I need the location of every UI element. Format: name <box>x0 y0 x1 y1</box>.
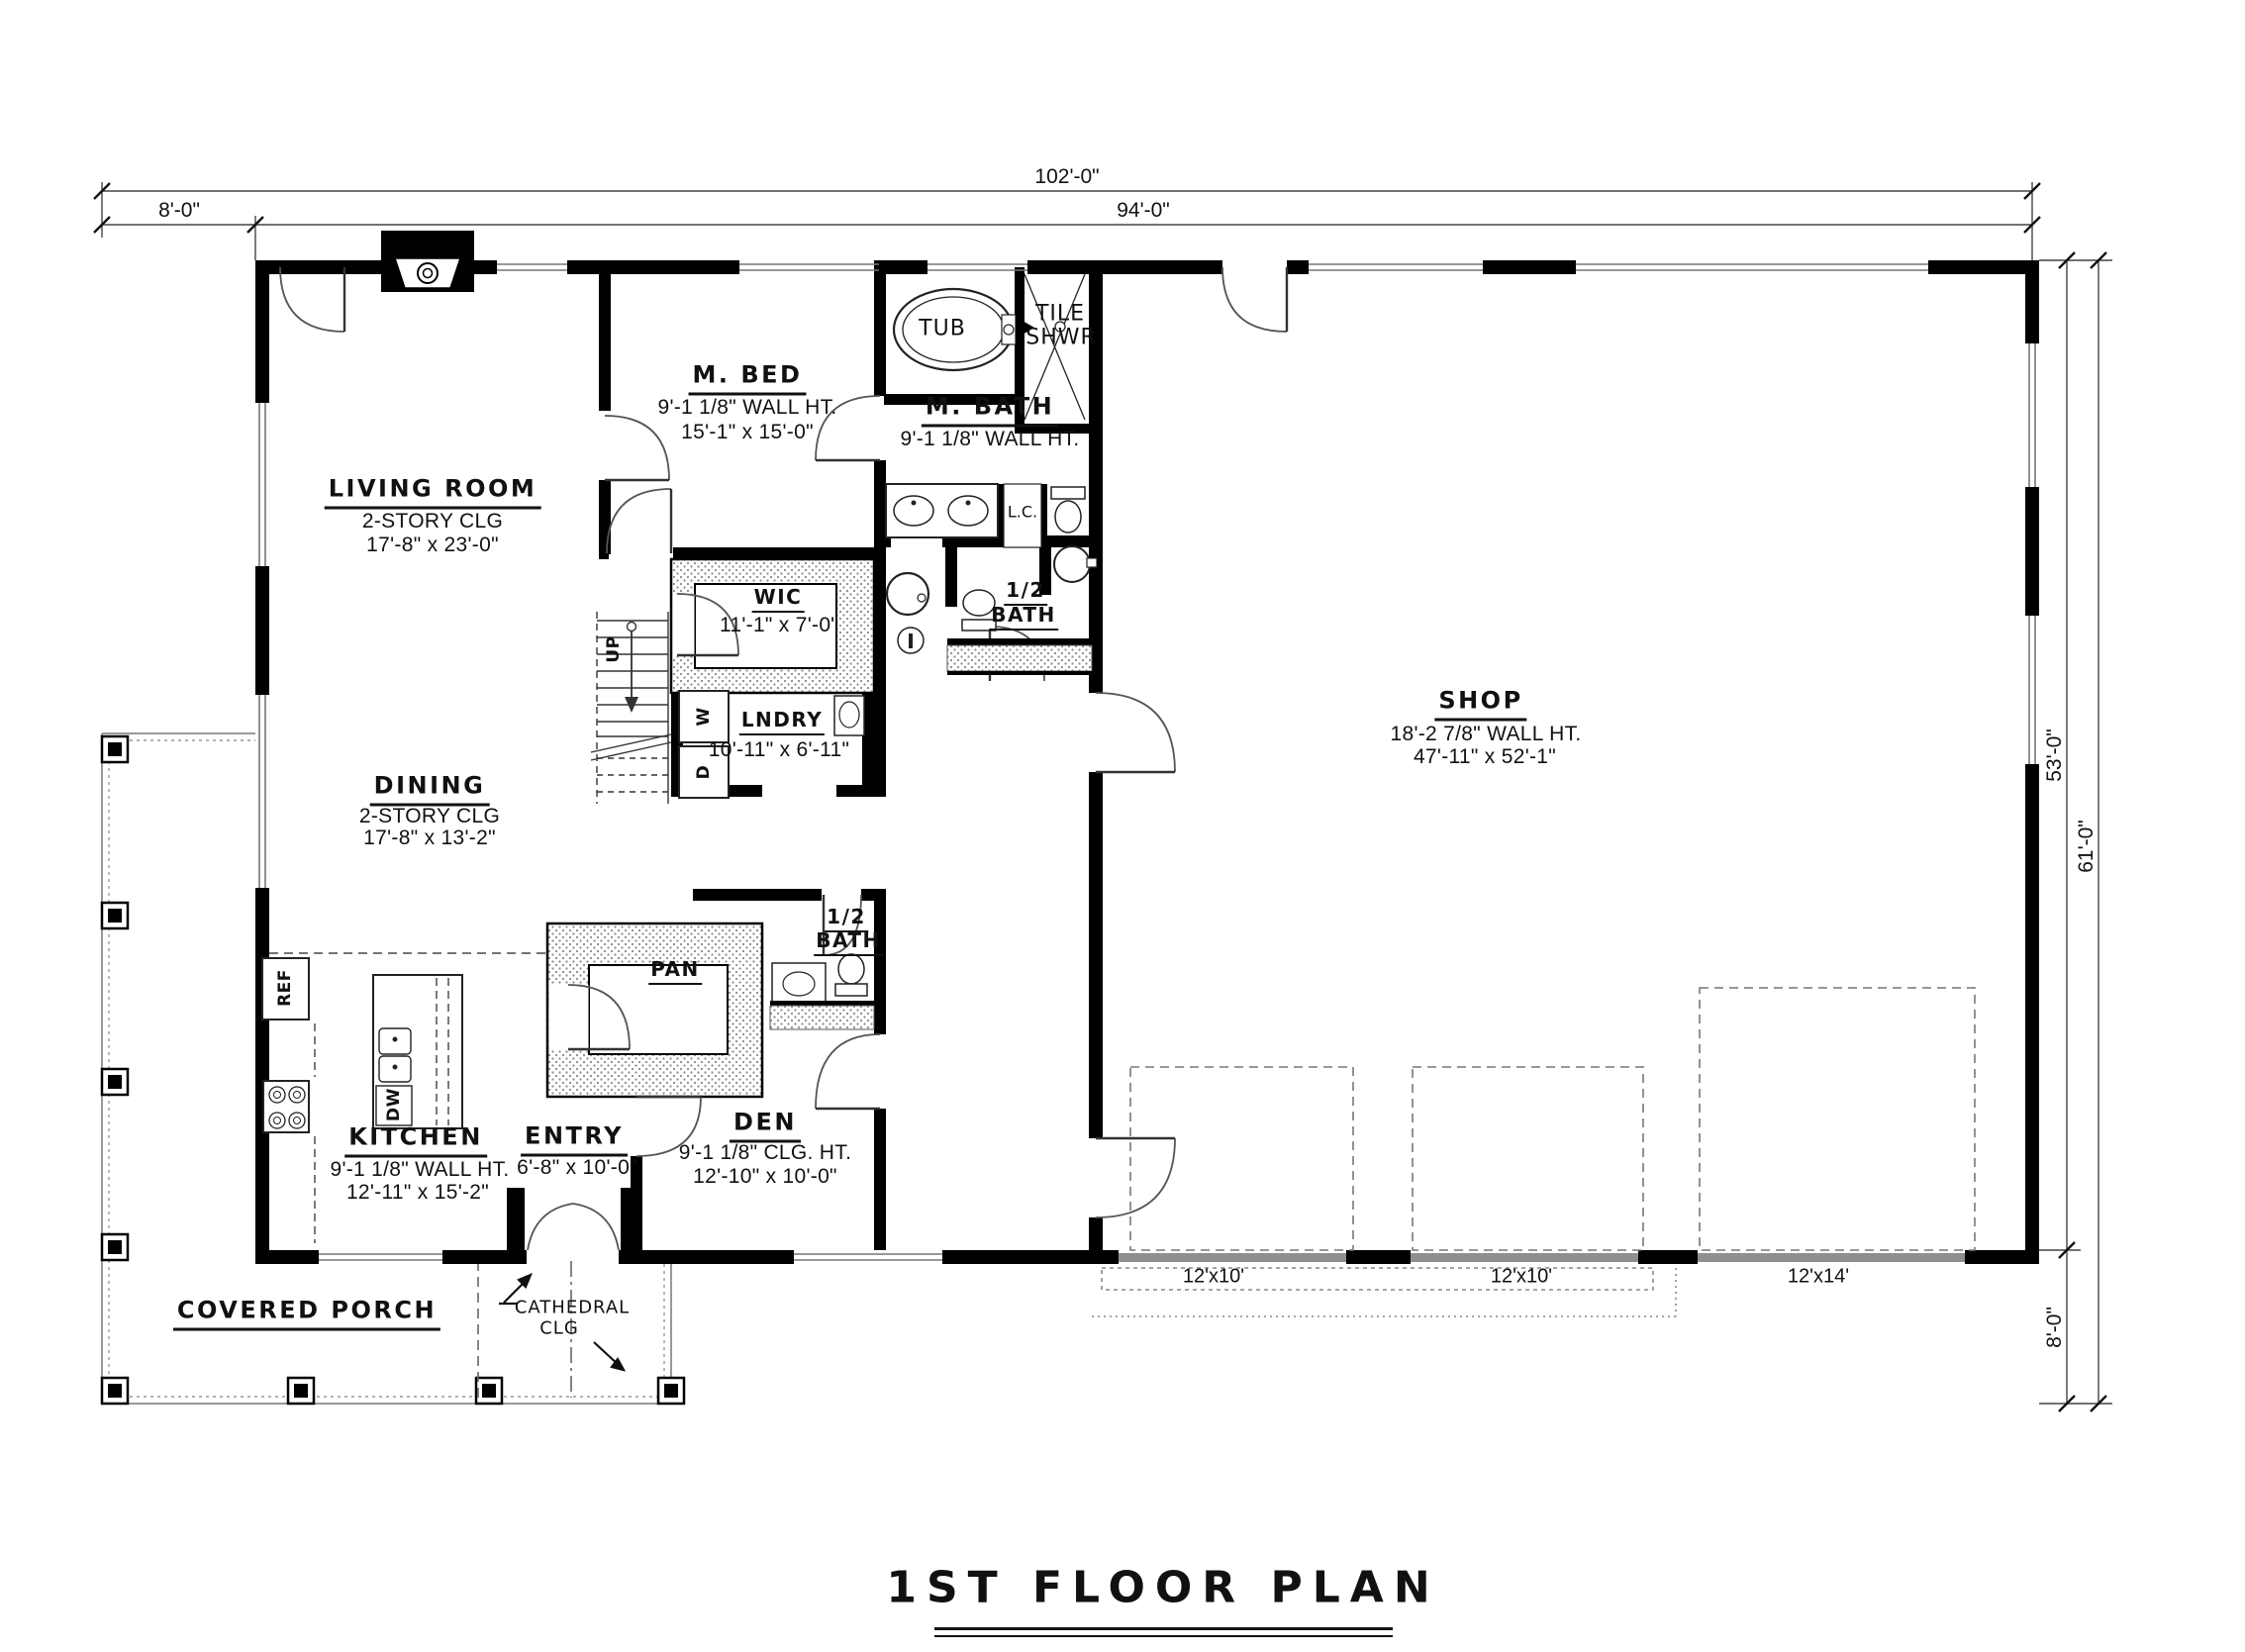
cathedral-clg-label-2: CLG <box>539 1318 579 1339</box>
kitchen-wall-height: 9'-1 1/8" WALL HT. <box>330 1158 509 1182</box>
kitchen-size: 12'-11" x 15'-2" <box>346 1181 489 1205</box>
pantry-label: PAN <box>648 957 702 985</box>
garage-door-size-1: 12'x10' <box>1183 1266 1244 1289</box>
cathedral-clg-label-1: CATHEDRAL <box>515 1298 630 1318</box>
half-bath-lower-fixtures <box>770 954 874 1029</box>
linen-closet-label: L.C. <box>1008 503 1037 522</box>
laundry-label: LNDRY <box>739 708 825 735</box>
fireplace <box>381 231 474 292</box>
living-room-ceiling: 2-STORY CLG <box>362 510 503 534</box>
wic-size: 11'-1" x 7'-0" <box>720 614 838 637</box>
shop-wall-height: 18'-2 7/8" WALL HT. <box>1390 723 1581 746</box>
shop-size: 47'-11" x 52'-1" <box>1414 745 1556 769</box>
laundry-size: 10'-11" x 6'-11" <box>709 738 850 762</box>
tile-shower-label-1: TILE <box>1035 302 1085 327</box>
title-underline-2 <box>934 1635 1393 1637</box>
dim-porch-width: 8'-0" <box>158 199 200 223</box>
dining-label: DINING <box>370 772 490 807</box>
garage-door-openings <box>1119 1253 1965 1262</box>
half-bath-upper-label-2: BATH <box>989 603 1058 631</box>
master-bath-wall-height: 9'-1 1/8" WALL HT. <box>900 428 1079 451</box>
dishwasher-label: DW <box>384 1088 404 1121</box>
entry-size: 6'-8" x 10'-0" <box>517 1156 637 1180</box>
floorplan-drawing <box>0 0 2245 1652</box>
stairs-up-label: UP <box>604 635 624 662</box>
garage-door-size-2: 12'x10' <box>1491 1266 1552 1289</box>
half-bath-upper-label-1: 1/2 <box>1004 578 1047 606</box>
master-bed-label: M. BED <box>689 361 807 396</box>
windows <box>255 260 2039 1264</box>
living-room-label: LIVING ROOM <box>325 475 541 510</box>
kitchen-label: KITCHEN <box>344 1123 487 1158</box>
master-bed-wall-height: 9'-1 1/8" WALL HT. <box>657 396 836 420</box>
dim-overall-width: 102'-0" <box>1034 165 1099 189</box>
master-bath-label: M. BATH <box>922 393 1058 428</box>
dryer-label: D <box>694 765 714 780</box>
pantry-walls <box>547 923 762 1097</box>
sheet-title: 1ST FLOOR PLAN <box>886 1563 1439 1613</box>
tub-label: TUB <box>919 317 966 341</box>
dim-porch-depth: 8'-0" <box>2043 1307 2067 1348</box>
wic-label: WIC <box>752 585 805 613</box>
refrigerator-label: REF <box>275 969 295 1007</box>
shop-label: SHOP <box>1434 687 1526 722</box>
entry-label: ENTRY <box>521 1122 628 1157</box>
walls <box>255 260 2039 1264</box>
living-room-size: 17'-8" x 23'-0" <box>366 534 499 557</box>
dining-ceiling: 2-STORY CLG <box>359 805 500 828</box>
dining-size: 17'-8" x 13'-2" <box>363 826 496 850</box>
den-label: DEN <box>730 1109 801 1143</box>
floor-plan-canvas: 102'-0" 94'-0" 8'-0" 53'-0" 61'-0" 8'-0"… <box>0 0 2245 1652</box>
master-bed-size: 15'-1" x 15'-0" <box>681 421 814 444</box>
title-underline-1 <box>934 1627 1393 1630</box>
covered-porch-label: COVERED PORCH <box>173 1297 440 1331</box>
tile-shower-label-2: SHWR <box>1025 326 1097 350</box>
dim-main-depth: 53'-0" <box>2043 729 2067 782</box>
den-size: 12'-10" x 10'-0" <box>693 1165 837 1189</box>
washer-label: W <box>694 707 714 726</box>
half-bath-lower-label-2: BATH <box>814 928 883 956</box>
den-ceiling: 9'-1 1/8" CLG. HT. <box>679 1141 851 1165</box>
garage-door-size-3: 12'x14' <box>1788 1266 1849 1289</box>
dim-main-width: 94'-0" <box>1117 199 1170 223</box>
dim-total-depth: 61'-0" <box>2075 820 2099 873</box>
